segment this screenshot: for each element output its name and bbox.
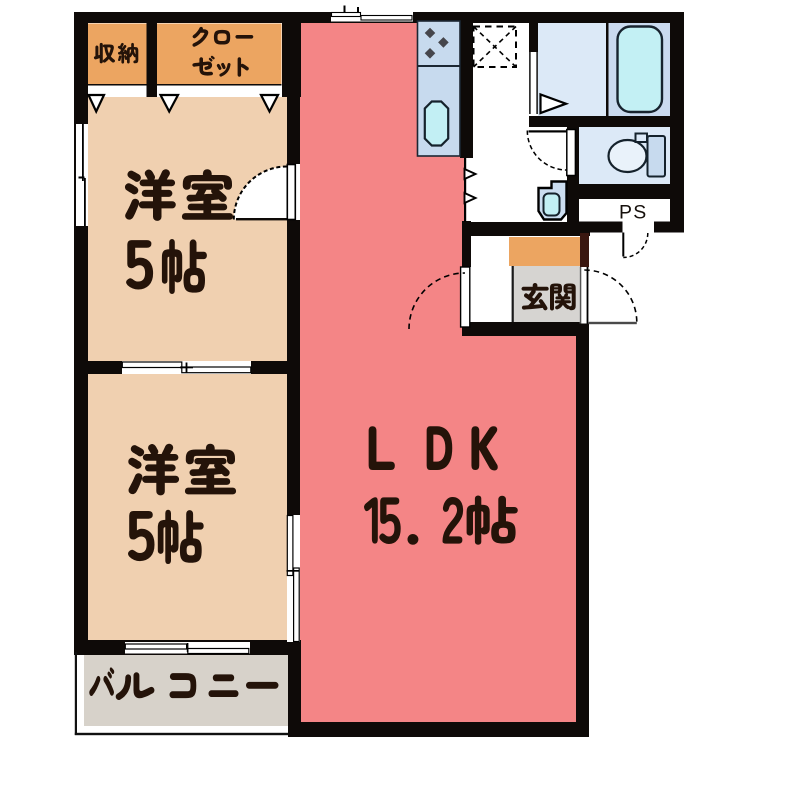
svg-text:PS: PS	[619, 202, 647, 224]
